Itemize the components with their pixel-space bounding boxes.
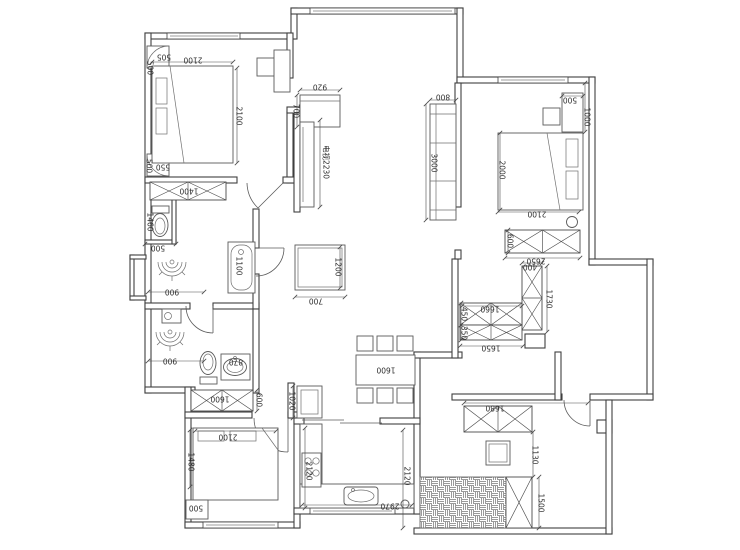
dim-label: 920	[313, 83, 328, 92]
shower-icon	[156, 330, 184, 351]
dim-label: 2970	[380, 502, 399, 511]
dim-label: 3000	[430, 153, 439, 172]
dim-label: 500	[189, 504, 204, 513]
chair-icon	[397, 388, 413, 403]
wall-segment	[414, 528, 612, 534]
dim-label: 2100	[183, 56, 202, 65]
dim-label: 1680	[485, 404, 504, 413]
dim-label: 500	[151, 244, 166, 253]
wall-segment	[213, 303, 259, 309]
living-room	[293, 88, 458, 299]
bedroom-a	[147, 46, 290, 176]
dim-label: 1650	[481, 344, 500, 353]
wall-segment	[145, 303, 190, 309]
wall-segment	[130, 255, 146, 259]
bed-icon	[498, 133, 583, 210]
wall-segment	[452, 394, 562, 400]
stool-icon	[567, 217, 578, 228]
dim-label: 1460	[146, 212, 155, 231]
chair-icon	[377, 336, 393, 351]
dim-label: 2120	[403, 466, 412, 485]
dim-label: 500	[146, 61, 155, 76]
chair-icon	[397, 336, 413, 351]
dim-label: 1500	[537, 493, 546, 512]
wall-segment	[283, 177, 295, 183]
dim-label: 870	[229, 358, 244, 367]
wall-segment	[589, 77, 595, 265]
dim-label: 350	[460, 326, 469, 341]
dim-label: 2100	[527, 210, 546, 219]
wall-segment	[130, 296, 146, 300]
dim-label: 1100	[235, 256, 244, 275]
dim-label: 700	[292, 104, 301, 119]
bath-2	[146, 330, 250, 384]
wall-segment	[145, 240, 176, 244]
wall-segment	[294, 418, 304, 424]
drain-circle	[401, 500, 409, 508]
chair-icon	[357, 336, 373, 351]
wall-segment	[287, 112, 293, 183]
door-swing-arc	[256, 248, 284, 276]
wall-segment	[452, 259, 458, 358]
door-leaf	[258, 183, 283, 208]
dim-label: 2100	[235, 106, 244, 125]
chair-icon	[377, 388, 393, 403]
dim-label: 2000	[498, 160, 507, 179]
dim-label: 1600	[376, 366, 395, 375]
wall-segment	[455, 250, 461, 259]
dim-label: 1000	[583, 107, 592, 126]
dim-label: 550	[156, 163, 171, 172]
wall-segment	[555, 352, 561, 400]
dim-label: 1200	[334, 257, 343, 276]
cabinet-icon	[274, 50, 290, 92]
door-swing-arc	[564, 400, 590, 426]
wall-segment	[606, 400, 612, 534]
dim-label: 1400	[179, 187, 198, 196]
dim-label: 2100	[218, 433, 237, 442]
dim-label: 1660	[480, 305, 499, 314]
wall-segment	[647, 259, 653, 400]
wall-segment	[457, 8, 463, 83]
dim-label: 505	[157, 53, 172, 62]
dim-label: 1130	[531, 445, 540, 464]
side-table	[543, 108, 560, 125]
chair-icon	[357, 388, 373, 403]
toilet-tank	[200, 377, 217, 384]
door-swing-arc	[247, 183, 258, 208]
dim-label: 1600	[210, 395, 229, 404]
dim-label: 800	[436, 93, 451, 102]
dim-label: 400	[523, 263, 538, 272]
dim-label: 1480	[187, 452, 196, 471]
shower-icon	[158, 260, 186, 281]
floor-plan-canvas: 505 500 2100 2100 550 500 1400 1460 500 …	[0, 0, 740, 550]
kitchen	[291, 384, 414, 510]
dim-label: 电视2230	[322, 145, 332, 179]
washing-machine	[486, 441, 510, 465]
dim-label: 2120	[305, 461, 314, 480]
dim-label: 500	[145, 159, 154, 174]
balcony-floor-hatch	[420, 477, 506, 528]
dim-label: 1730	[545, 289, 554, 308]
laundry-balcony	[401, 401, 590, 530]
dim-label: 600	[506, 234, 515, 249]
tv-unit	[300, 122, 314, 207]
dim-label: 900	[163, 357, 178, 366]
dim-label: 1020	[288, 391, 297, 410]
wall-segment	[172, 198, 176, 244]
wall-segment	[253, 309, 259, 393]
dim-label: 450	[460, 307, 469, 322]
wall-segment	[130, 255, 134, 300]
wall-segment	[185, 412, 252, 418]
desk-icon	[257, 58, 275, 76]
wall-segment	[525, 334, 545, 348]
floor-plan-sheet: 505 500 2100 2100 550 500 1400 1460 500 …	[0, 0, 740, 550]
wall-segment	[589, 259, 653, 265]
bed-icon	[152, 66, 233, 163]
door-swing-arc	[186, 306, 213, 333]
dim-label: 500	[563, 96, 578, 105]
dim-label: 600	[255, 393, 264, 408]
wall-segment	[590, 394, 653, 400]
dim-label: 900	[165, 288, 180, 297]
dim-label: 700	[309, 297, 324, 306]
wall-segment	[380, 418, 420, 424]
